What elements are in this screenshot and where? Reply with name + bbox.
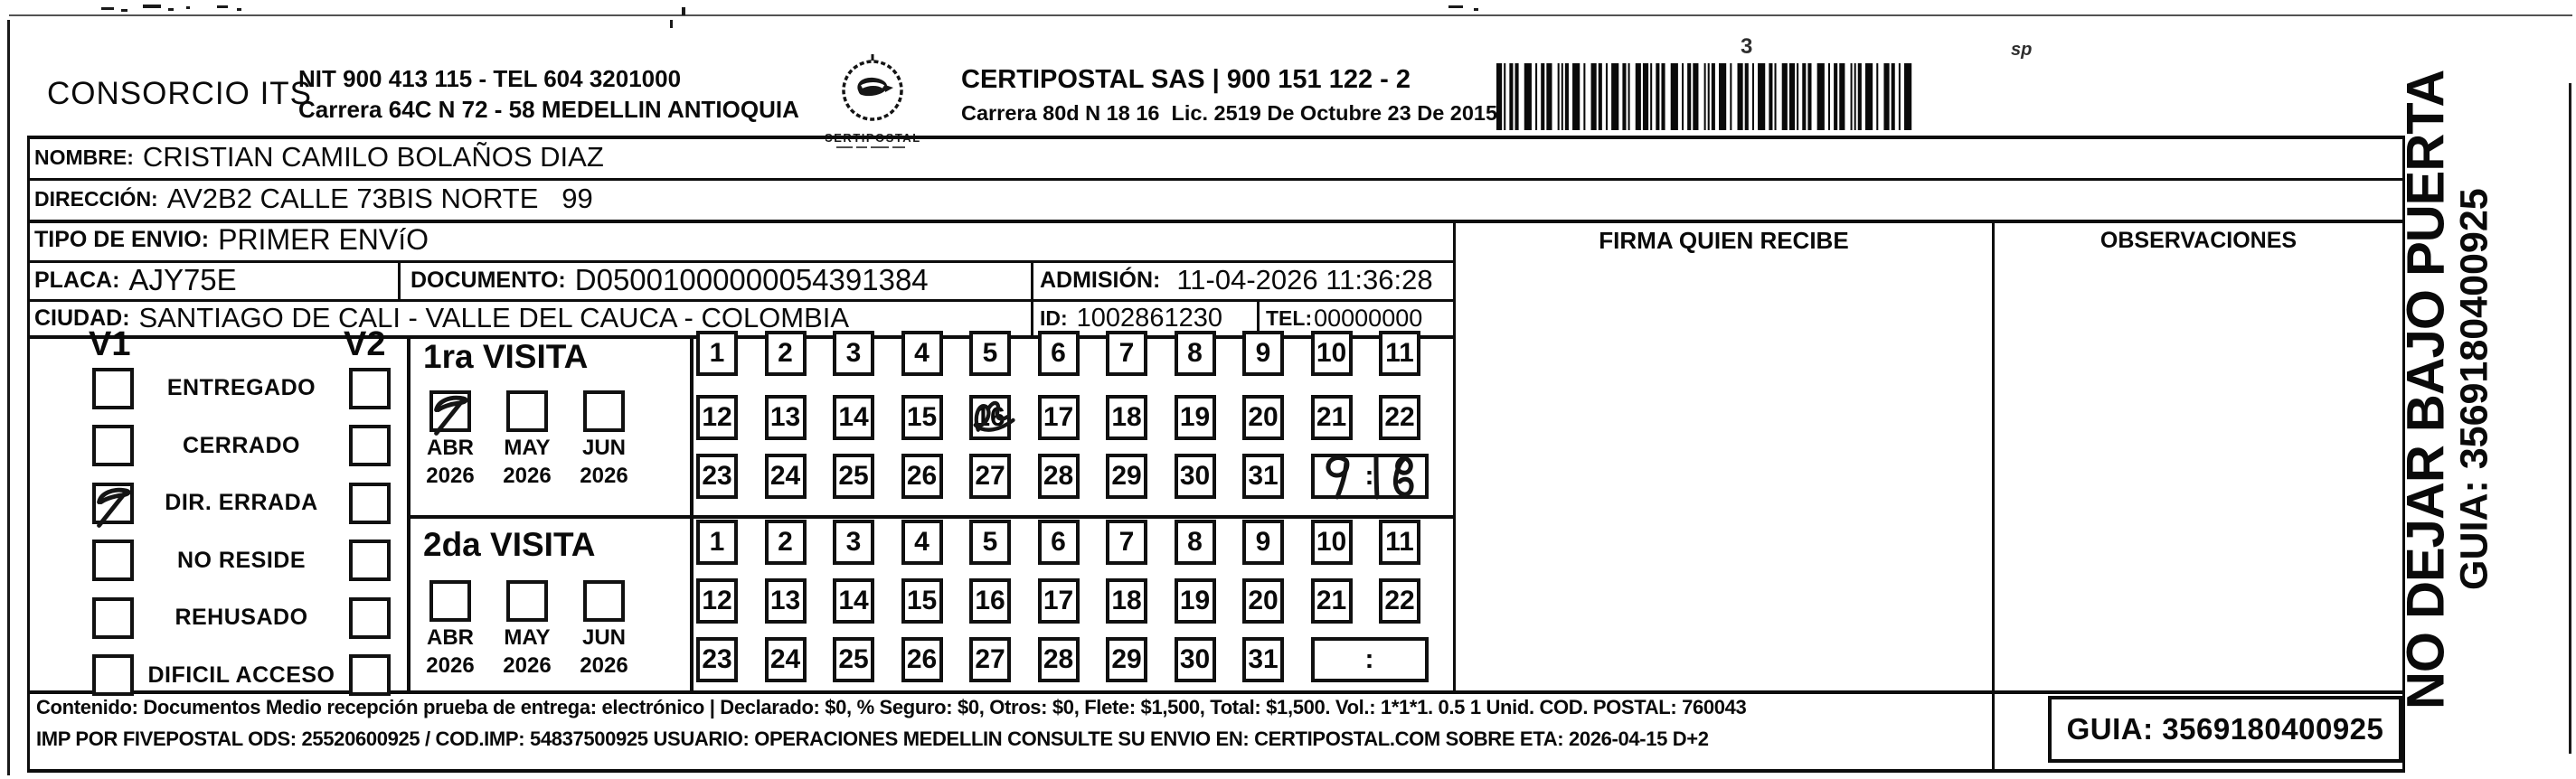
tel-value: 00000000: [1314, 305, 1422, 333]
nombre-row: NOMBRE: CRISTIAN CAMILO BOLAÑOS DIAZ: [34, 137, 604, 177]
handwritten-time: [1315, 450, 1432, 502]
day-number: 5: [983, 338, 998, 369]
day-number: 13: [770, 586, 800, 616]
company-name: CONSORCIO ITS: [47, 76, 312, 112]
month-label: ABR: [427, 626, 474, 650]
day-number: 7: [1119, 527, 1135, 558]
visit1-day-cell-1: 1: [696, 331, 738, 376]
visit2-day-cell-19: 19: [1175, 578, 1216, 624]
direccion-label: DIRECCIÓN:: [34, 187, 158, 211]
scan-speck: [1448, 5, 1463, 8]
delivery-status-panel: ENTREGADOCERRADODIR. ERRADANO RESIDEREHU…: [27, 360, 407, 704]
scan-speck: [101, 7, 114, 10]
table-border: [407, 335, 410, 693]
tipo-envio-value: PRIMER ENVíO: [218, 223, 429, 257]
day-number: 8: [1187, 338, 1203, 369]
visit1-day-cell-17: 17: [1038, 395, 1080, 440]
scan-right-edge: [2569, 83, 2571, 754]
tipo-envio-label: TIPO DE ENVIO:: [34, 227, 209, 253]
status-row-entregado: ENTREGADO: [27, 360, 407, 418]
visit1-day-row-2: 1213141516171819202122: [696, 395, 1420, 440]
visit1-day-cell-20: 20: [1242, 395, 1284, 440]
day-number: 3: [846, 527, 862, 558]
day-number: 4: [914, 527, 929, 558]
visit2-day-cell-20: 20: [1242, 578, 1284, 624]
visit1-day-cell-7: 7: [1106, 331, 1147, 376]
visit2-day-cell-17: 17: [1038, 578, 1080, 624]
day-number: 14: [838, 586, 868, 616]
guia-number-box: GUIA: 3569180400925: [2048, 696, 2402, 763]
visit2-day-cell-8: 8: [1175, 520, 1216, 565]
ciudad-value: SANTIAGO DE CALI - VALLE DEL CAUCA - COL…: [139, 302, 850, 334]
day-number: 12: [702, 402, 731, 433]
id-value: 1002861230: [1077, 304, 1222, 333]
visit2-day-cell-2: 2: [765, 520, 807, 565]
v2-checkbox-cerrado: [349, 425, 391, 466]
company-info: NIT 900 413 115 - TEL 604 3201000Carrera…: [298, 63, 799, 125]
day-number: 18: [1111, 586, 1141, 616]
visit2-month-abr: ABR2026: [414, 580, 486, 678]
visit2-day-cell-11: 11: [1379, 520, 1420, 565]
visit2-day-cell-18: 18: [1106, 578, 1147, 624]
month-label: MAY: [504, 436, 550, 460]
stray-mark: 3: [1741, 34, 1752, 60]
day-number: 20: [1248, 586, 1278, 616]
day-number: 29: [1111, 644, 1141, 675]
table-border: [1031, 260, 1033, 302]
nombre-label: NOMBRE:: [34, 145, 134, 170]
month-label: JUN: [582, 626, 626, 650]
visit1-day-cell-8: 8: [1175, 331, 1216, 376]
direccion-value: AV2B2 CALLE 73BIS NORTE 99: [167, 183, 593, 215]
visit2-day-cell-12: 12: [696, 578, 738, 624]
visit2-day-row-2: 1213141516171819202122: [696, 578, 1420, 624]
v1-checkbox-rehusado: [92, 597, 134, 639]
day-number: 29: [1111, 461, 1141, 492]
day-number: 13: [770, 402, 800, 433]
day-number: 17: [1043, 402, 1073, 433]
scan-speck: [217, 5, 228, 8]
firma-column-header: FIRMA QUIEN RECIBE: [1456, 221, 1992, 260]
day-number: 27: [975, 644, 1005, 675]
table-border: [398, 260, 401, 302]
month-checkbox-may: [506, 580, 548, 622]
status-option-label: REHUSADO: [134, 605, 349, 631]
day-number: 28: [1043, 644, 1073, 675]
visit2-day-cell-21: 21: [1311, 578, 1353, 624]
id-label: ID:: [1040, 306, 1068, 331]
v1-checkbox-no-reside: [92, 540, 134, 581]
status-option-label: DIFICIL ACCESO: [134, 662, 349, 689]
barcode: [1495, 63, 1920, 132]
nombre-value: CRISTIAN CAMILO BOLAÑOS DIAZ: [143, 141, 604, 174]
visit1-day-cell-23: 23: [696, 454, 738, 499]
v1-checkbox-dir-errada: [92, 483, 134, 524]
visit1-day-cell-21: 21: [1311, 395, 1353, 440]
visit1-day-cell-4: 4: [901, 331, 943, 376]
status-option-label: ENTREGADO: [134, 375, 349, 401]
admision-field: ADMISIÓN: 11-04-2026 11:36:28: [1040, 262, 1433, 298]
day-number: 25: [838, 461, 868, 492]
day-number: 1: [710, 338, 725, 369]
visit2-day-cell-23: 23: [696, 637, 738, 682]
day-number: 4: [914, 338, 929, 369]
documento-field: DOCUMENTO: D05001000000054391384: [410, 262, 929, 298]
visit1-day-cell-26: 26: [901, 454, 943, 499]
day-number: 3: [846, 338, 862, 369]
visit2-day-row-1: 1234567891011: [696, 520, 1420, 565]
visit2-day-cell-29: 29: [1106, 637, 1147, 682]
status-row-dir-errada: DIR. ERRADA: [27, 474, 407, 532]
day-number: 22: [1384, 402, 1414, 433]
day-number: 19: [1180, 586, 1210, 616]
year-label: 2026: [503, 465, 551, 488]
day-number: 26: [907, 461, 937, 492]
visit1-month-boxes: ABR2026MAY2026JUN2026: [414, 390, 640, 488]
visit1-day-cell-25: 25: [833, 454, 874, 499]
day-number: 6: [1051, 338, 1066, 369]
handwritten-check-icon: [92, 482, 143, 532]
visit2-day-row-3: 232425262728293031:: [696, 637, 1429, 682]
day-number: 20: [1248, 402, 1278, 433]
day-number: 16: [975, 586, 1005, 616]
visit2-day-cell-15: 15: [901, 578, 943, 624]
visit1-day-cell-3: 3: [833, 331, 874, 376]
day-number: 31: [1248, 461, 1278, 492]
visit2-day-cell-16: 16: [969, 578, 1011, 624]
month-checkbox-jun: [583, 580, 625, 622]
documento-label: DOCUMENTO:: [410, 267, 566, 294]
documento-value: D05001000000054391384: [575, 263, 929, 297]
status-row-cerrado: CERRADO: [27, 418, 407, 475]
year-label: 2026: [426, 465, 474, 488]
day-number: 9: [1256, 527, 1271, 558]
day-number: 28: [1043, 461, 1073, 492]
company-nit: NIT 900 413 115 - TEL 604 3201000: [298, 65, 681, 92]
visit1-time-cell: :: [1311, 454, 1429, 499]
year-label: 2026: [503, 654, 551, 678]
placa-field: PLACA: AJY75E: [34, 262, 237, 298]
visit1-day-cell-6: 6: [1038, 331, 1080, 376]
day-number: 5: [983, 527, 998, 558]
day-number: 26: [907, 644, 937, 675]
visit2-month-jun: JUN2026: [568, 580, 640, 678]
visit2-day-cell-6: 6: [1038, 520, 1080, 565]
side-warning-text: NO DEJAR BAJO PUERTA: [2396, 0, 2456, 779]
day-number: 12: [702, 586, 731, 616]
day-number: 2: [778, 338, 793, 369]
scan-speck: [186, 6, 190, 9]
provider-name: CERTIPOSTAL SAS | 900 151 122 - 2: [961, 65, 1411, 95]
visit2-day-cell-13: 13: [765, 578, 807, 624]
day-number: 27: [975, 461, 1005, 492]
scan-speck: [682, 7, 685, 15]
table-border: [27, 769, 2405, 773]
month-checkbox-abr: [429, 580, 471, 622]
visit2-day-cell-9: 9: [1242, 520, 1284, 565]
visit2-day-cell-30: 30: [1175, 637, 1216, 682]
day-number: 31: [1248, 644, 1278, 675]
table-border: [1992, 220, 1995, 773]
visit1-day-cell-14: 14: [833, 395, 874, 440]
imp-line: IMP POR FIVEPOSTAL ODS: 25520600925 / CO…: [36, 727, 1987, 751]
day-number: 11: [1385, 338, 1414, 369]
visit1-day-cell-31: 31: [1242, 454, 1284, 499]
v2-checkbox-dificil-acceso: [349, 654, 391, 696]
provider-address: Carrera 80d N 18 16 Lic. 2519 De Octubre…: [961, 101, 1497, 126]
scan-speck: [168, 8, 174, 11]
scan-speck: [121, 9, 127, 12]
v1-checkbox-dificil-acceso: [92, 654, 134, 696]
month-label: MAY: [504, 626, 550, 650]
scan-speck: [143, 5, 161, 8]
day-number: 7: [1119, 338, 1135, 369]
day-number: 15: [907, 586, 937, 616]
visit2-month-boxes: ABR2026MAY2026JUN2026: [414, 580, 640, 678]
placa-value: AJY75E: [128, 263, 236, 297]
company-address: Carrera 64C N 72 - 58 MEDELLIN ANTIOQUIA: [298, 96, 799, 123]
visit1-day-row-1: 1234567891011: [696, 331, 1420, 376]
visit1-day-cell-29: 29: [1106, 454, 1147, 499]
day-number: 19: [1180, 402, 1210, 433]
visit2-title: 2da VISITA: [423, 526, 596, 564]
visit1-month-may: MAY2026: [491, 390, 563, 488]
handwritten-check-icon: [429, 389, 480, 440]
day-number: 25: [838, 644, 868, 675]
status-row-no-reside: NO RESIDE: [27, 532, 407, 590]
visit1-day-cell-19: 19: [1175, 395, 1216, 440]
table-border: [1453, 220, 1456, 694]
scan-top-edge: [9, 14, 2572, 16]
visit2-day-cell-31: 31: [1242, 637, 1284, 682]
day-number: 15: [907, 402, 937, 433]
day-number: 9: [1256, 338, 1271, 369]
v2-checkbox-rehusado: [349, 597, 391, 639]
month-checkbox-jun: [583, 390, 625, 432]
visit1-month-jun: JUN2026: [568, 390, 640, 488]
visit1-day-cell-15: 15: [901, 395, 943, 440]
visit2-day-cell-28: 28: [1038, 637, 1080, 682]
day-number: 24: [770, 644, 800, 675]
placa-label: PLACA:: [34, 267, 119, 294]
day-number: 21: [1316, 586, 1346, 616]
visit1-day-cell-12: 12: [696, 395, 738, 440]
visit2-day-cell-10: 10: [1311, 520, 1353, 565]
visit1-month-abr: ABR2026: [414, 390, 486, 488]
admision-value: 11-04-2026 11:36:28: [1176, 264, 1432, 296]
status-option-label: CERRADO: [134, 433, 349, 459]
direccion-row: DIRECCIÓN: AV2B2 CALLE 73BIS NORTE 99: [34, 180, 593, 218]
visit2-day-cell-22: 22: [1379, 578, 1420, 624]
visit2-day-cell-14: 14: [833, 578, 874, 624]
day-number: 1: [710, 527, 725, 558]
day-number: 21: [1316, 402, 1346, 433]
month-checkbox-abr: [429, 390, 471, 432]
tel-label: TEL:: [1266, 306, 1312, 331]
day-number: 23: [702, 461, 731, 492]
visit2-day-cell-1: 1: [696, 520, 738, 565]
status-option-label: NO RESIDE: [134, 548, 349, 574]
day-number: 30: [1180, 644, 1210, 675]
visit1-title: 1ra VISITA: [423, 338, 588, 376]
v2-column-header: V2: [344, 325, 385, 364]
visit1-day-cell-2: 2: [765, 331, 807, 376]
scan-speck: [1474, 8, 1478, 11]
month-checkbox-may: [506, 390, 548, 432]
month-label: JUN: [582, 436, 626, 460]
visit1-day-row-3: 232425262728293031:: [696, 454, 1429, 499]
visit2-day-cell-5: 5: [969, 520, 1011, 565]
observaciones-column-header: OBSERVACIONES: [1995, 221, 2402, 260]
day-number: 14: [838, 402, 868, 433]
time-separator: :: [1365, 644, 1374, 675]
visit1-day-cell-30: 30: [1175, 454, 1216, 499]
visit2-day-cell-27: 27: [969, 637, 1011, 682]
visit2-time-cell: :: [1311, 637, 1429, 682]
shipping-label-document: 3 sp CONSORCIO ITS NIT 900 413 115 - TEL…: [0, 0, 2576, 779]
visit1-day-cell-28: 28: [1038, 454, 1080, 499]
year-label: 2026: [580, 654, 627, 678]
visit1-day-cell-10: 10: [1311, 331, 1353, 376]
day-number: 17: [1043, 586, 1073, 616]
visit2-day-cell-24: 24: [765, 637, 807, 682]
day-number: 6: [1051, 527, 1066, 558]
day-number: 23: [702, 644, 731, 675]
admision-label: ADMISIÓN:: [1040, 267, 1160, 294]
visit1-day-cell-24: 24: [765, 454, 807, 499]
table-border: [690, 335, 694, 693]
day-number: 8: [1187, 527, 1203, 558]
stray-mark: sp: [2011, 40, 2032, 61]
visit1-day-cell-11: 11: [1379, 331, 1420, 376]
visit1-day-cell-16: 16: [969, 395, 1011, 440]
day-number: 11: [1385, 527, 1414, 558]
visit1-day-cell-9: 9: [1242, 331, 1284, 376]
handwritten-scribble-icon: [969, 395, 1018, 447]
year-label: 2026: [426, 654, 474, 678]
v1-checkbox-cerrado: [92, 425, 134, 466]
side-guia-text: GUIA: 3569180400925: [2452, 0, 2497, 779]
status-row-rehusado: REHUSADO: [27, 589, 407, 647]
visit1-day-cell-27: 27: [969, 454, 1011, 499]
scan-left-edge: [7, 20, 10, 775]
contenido-line: Contenido: Documentos Medio recepción pr…: [36, 696, 1987, 719]
visit1-day-cell-5: 5: [969, 331, 1011, 376]
visit2-day-cell-3: 3: [833, 520, 874, 565]
day-number: 2: [778, 527, 793, 558]
day-number: 24: [770, 461, 800, 492]
v2-checkbox-entregado: [349, 368, 391, 409]
visit2-day-cell-4: 4: [901, 520, 943, 565]
v2-checkbox-dir-errada: [349, 483, 391, 524]
day-number: 30: [1180, 461, 1210, 492]
day-number: 22: [1384, 586, 1414, 616]
visit1-day-cell-13: 13: [765, 395, 807, 440]
day-number: 18: [1111, 402, 1141, 433]
year-label: 2026: [580, 465, 627, 488]
day-number: 10: [1316, 338, 1346, 369]
day-number: 10: [1316, 527, 1346, 558]
table-border: [407, 515, 1456, 519]
visit2-month-may: MAY2026: [491, 580, 563, 678]
scan-speck: [670, 20, 673, 28]
visit1-day-cell-22: 22: [1379, 395, 1420, 440]
v2-checkbox-no-reside: [349, 540, 391, 581]
v1-checkbox-entregado: [92, 368, 134, 409]
visit2-day-cell-25: 25: [833, 637, 874, 682]
v1-column-header: V1: [89, 325, 130, 364]
tipo-envio-field: TIPO DE ENVIO: PRIMER ENVíO: [34, 221, 429, 258]
visit2-day-cell-26: 26: [901, 637, 943, 682]
scan-speck: [237, 8, 241, 11]
visit1-day-cell-18: 18: [1106, 395, 1147, 440]
visit2-day-cell-7: 7: [1106, 520, 1147, 565]
status-option-label: DIR. ERRADA: [134, 490, 349, 516]
